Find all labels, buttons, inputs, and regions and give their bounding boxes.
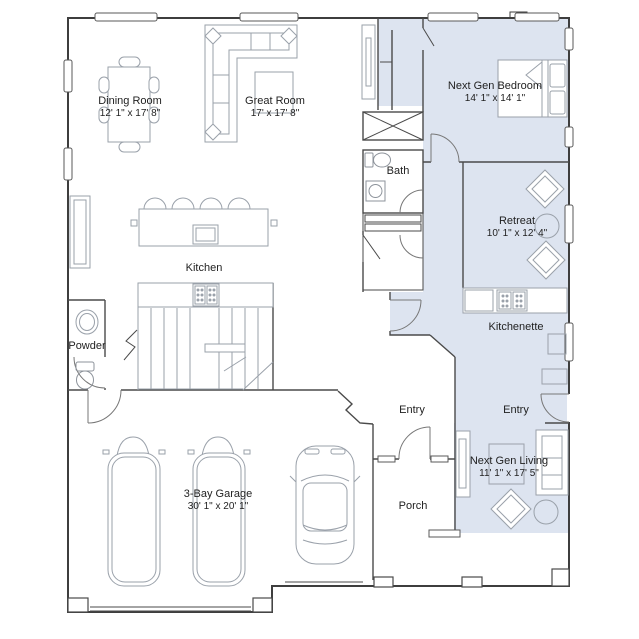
porch-pillar xyxy=(462,577,482,587)
hall-cabinet xyxy=(362,25,375,99)
bar-stool xyxy=(200,198,222,209)
porch-pillar xyxy=(552,569,569,586)
sidelight-window xyxy=(431,456,448,462)
floor-plan-page: Dining Room 12' 1" x 17' 8" Great Room 1… xyxy=(0,0,639,639)
room-label-entry-main: Entry xyxy=(399,404,425,416)
kitchen-counter xyxy=(138,283,273,307)
window xyxy=(515,13,559,21)
window xyxy=(429,530,460,537)
porch-pillar xyxy=(374,577,393,587)
window xyxy=(565,127,573,147)
window xyxy=(64,60,72,92)
window xyxy=(95,13,157,21)
room-label-entry-suite: Entry xyxy=(503,404,529,416)
dining-chair xyxy=(119,142,140,152)
room-label-dining-room: Dining Room 12' 1" x 17' 8" xyxy=(98,95,162,120)
suv xyxy=(103,437,165,586)
room-label-kitchenette: Kitchenette xyxy=(488,321,543,333)
bar-stool xyxy=(144,198,166,209)
cooktop xyxy=(193,284,219,306)
room-label-retreat: Retreat 10' 1" x 12' 4" xyxy=(487,215,547,240)
car xyxy=(290,446,360,564)
closet-door-arc xyxy=(400,235,423,258)
window xyxy=(565,28,573,50)
room-label-next-gen-living: Next Gen Living 11' 1" x 17' 5" xyxy=(470,455,548,480)
stairs xyxy=(138,307,273,390)
right-wall-door-opening xyxy=(567,394,572,422)
room-label-kitchen: Kitchen xyxy=(186,262,223,274)
window xyxy=(565,205,573,243)
floor-plan-drawing xyxy=(0,0,639,639)
room-label-garage: 3-Bay Garage 30' 1" x 20' 1" xyxy=(184,488,252,513)
pillar xyxy=(68,598,88,612)
dining-chair xyxy=(99,77,109,93)
bar-stool xyxy=(228,198,250,209)
bar-stool xyxy=(172,198,194,209)
sidelight-window xyxy=(378,456,395,462)
dining-chair xyxy=(119,57,140,67)
garage-door-arc xyxy=(88,390,121,423)
front-door-arc xyxy=(399,427,430,459)
sectional-sofa xyxy=(205,25,297,142)
room-label-powder: Powder xyxy=(68,340,105,352)
room-label-next-gen-bedroom: Next Gen Bedroom 14' 1" x 14' 1" xyxy=(448,80,542,105)
window xyxy=(428,13,478,21)
pillar xyxy=(253,598,272,612)
powder-sink xyxy=(76,310,98,334)
room-label-bath: Bath xyxy=(387,165,410,177)
room-label-great-room: Great Room 17' x 17' 8" xyxy=(245,95,305,120)
tv-console xyxy=(456,431,470,497)
dining-chair xyxy=(149,77,159,93)
window xyxy=(240,13,298,21)
pantry-counter xyxy=(70,196,90,268)
window xyxy=(64,148,72,180)
room-label-porch: Porch xyxy=(399,500,428,512)
kitchen-island xyxy=(131,198,277,246)
